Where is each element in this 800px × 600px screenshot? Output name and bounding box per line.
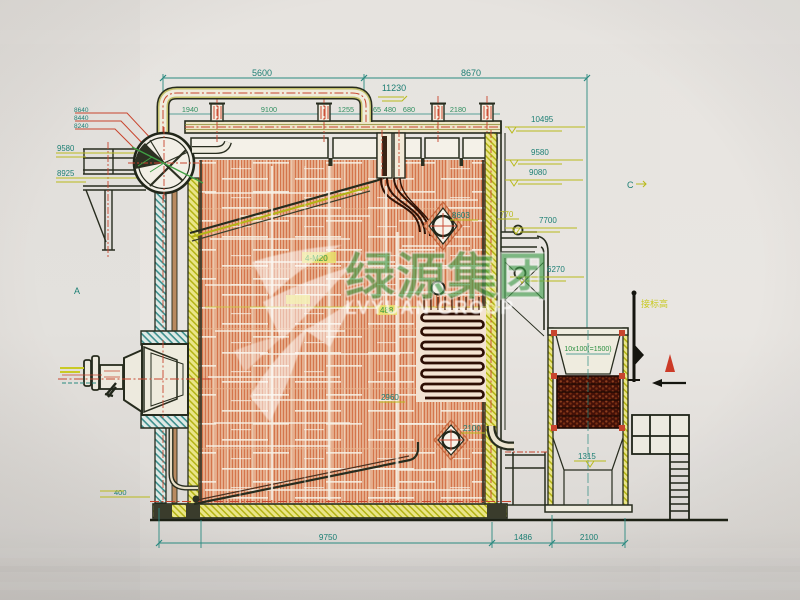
svg-text:C: C xyxy=(627,180,634,190)
svg-text:1486: 1486 xyxy=(514,533,533,542)
svg-text:A: A xyxy=(74,286,80,296)
svg-text:LVYUAN GROUP: LVYUAN GROUP xyxy=(345,298,515,319)
svg-text:9580: 9580 xyxy=(531,148,549,157)
svg-text:9750: 9750 xyxy=(319,533,338,542)
svg-text:8240: 8240 xyxy=(74,123,89,130)
svg-text:2180: 2180 xyxy=(450,105,466,114)
svg-text:5600: 5600 xyxy=(252,68,272,78)
svg-text:1315: 1315 xyxy=(578,452,596,461)
svg-text:1255: 1255 xyxy=(338,105,354,114)
svg-text:8640: 8640 xyxy=(74,107,89,114)
svg-text:2960: 2960 xyxy=(381,393,399,402)
svg-text:2100: 2100 xyxy=(463,424,481,433)
svg-text:2100: 2100 xyxy=(580,533,599,542)
svg-text:6270: 6270 xyxy=(547,265,565,274)
svg-text:8603: 8603 xyxy=(452,211,470,220)
svg-text:10495: 10495 xyxy=(531,115,554,124)
svg-text:9580: 9580 xyxy=(57,144,75,153)
svg-text:11230: 11230 xyxy=(382,83,406,93)
svg-text:9080: 9080 xyxy=(529,168,547,177)
svg-text:绿源集团: 绿源集团 xyxy=(345,249,549,305)
svg-text:8670: 8670 xyxy=(461,68,481,78)
svg-text:1940: 1940 xyxy=(182,105,198,114)
svg-text:7700: 7700 xyxy=(539,216,557,225)
svg-text:接标高: 接标高 xyxy=(641,298,668,309)
svg-text:8925: 8925 xyxy=(57,169,75,178)
svg-text:480: 480 xyxy=(384,105,396,114)
svg-text:9100: 9100 xyxy=(261,105,277,114)
svg-text:400: 400 xyxy=(114,488,127,497)
svg-text:770: 770 xyxy=(500,210,514,219)
svg-text:680: 680 xyxy=(403,105,415,114)
svg-text:8440: 8440 xyxy=(74,115,89,122)
